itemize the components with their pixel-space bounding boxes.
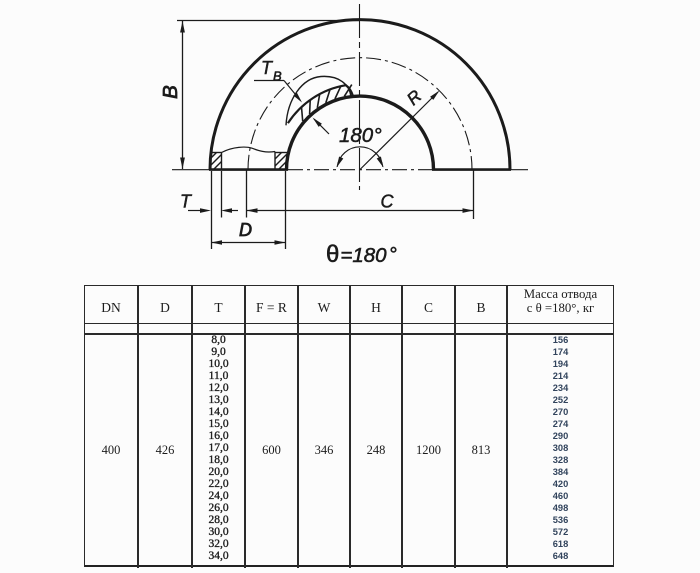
svg-text:R: R	[403, 86, 426, 110]
svg-text:θ=180°: θ=180°	[326, 241, 398, 268]
svg-text:B: B	[159, 85, 182, 99]
svg-text:D: D	[239, 220, 252, 240]
svg-text:B: B	[273, 69, 282, 84]
svg-text:T: T	[180, 192, 193, 212]
svg-text:180°: 180°	[339, 124, 382, 147]
svg-text:C: C	[381, 192, 395, 212]
